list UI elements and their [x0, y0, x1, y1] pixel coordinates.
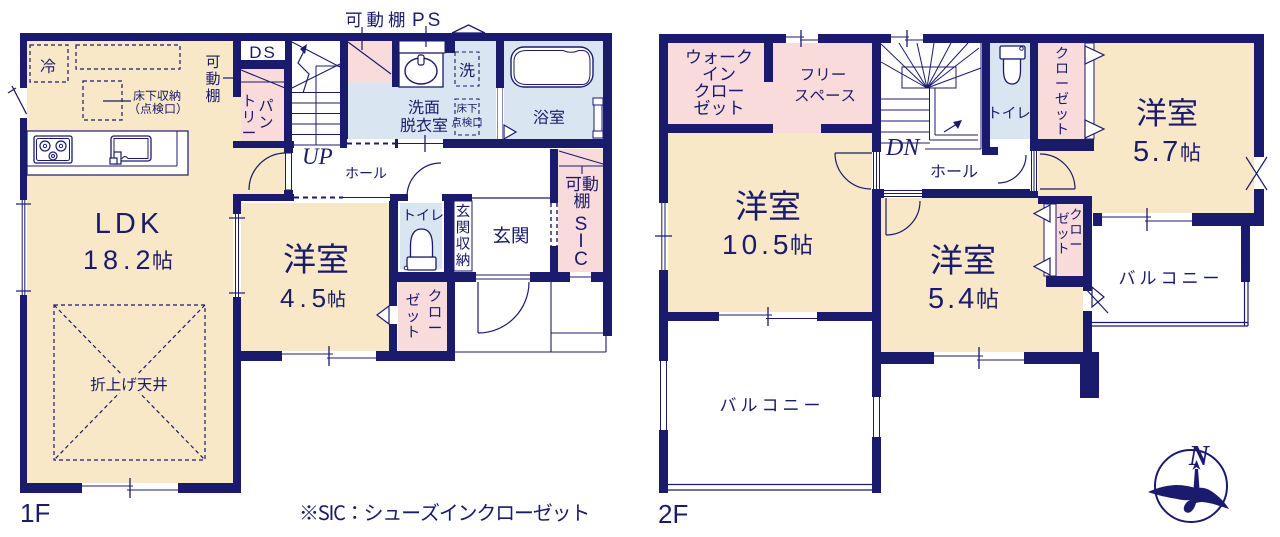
svg-text:C: C — [574, 249, 588, 270]
svg-text:1F: 1F — [20, 498, 50, 528]
svg-text:2F: 2F — [658, 499, 688, 529]
svg-text:4.5: 4.5 — [280, 283, 331, 313]
svg-text:18.2: 18.2 — [83, 245, 156, 275]
svg-text:5.4: 5.4 — [928, 283, 977, 315]
svg-text:10.5: 10.5 — [722, 229, 793, 260]
svg-text:DS: DS — [249, 43, 277, 62]
svg-text:PS: PS — [412, 10, 443, 31]
svg-text:LDK: LDK — [95, 208, 163, 240]
svg-text:UP: UP — [302, 144, 333, 169]
svg-text:5.7: 5.7 — [1133, 136, 1181, 168]
svg-text:DN: DN — [885, 135, 921, 161]
